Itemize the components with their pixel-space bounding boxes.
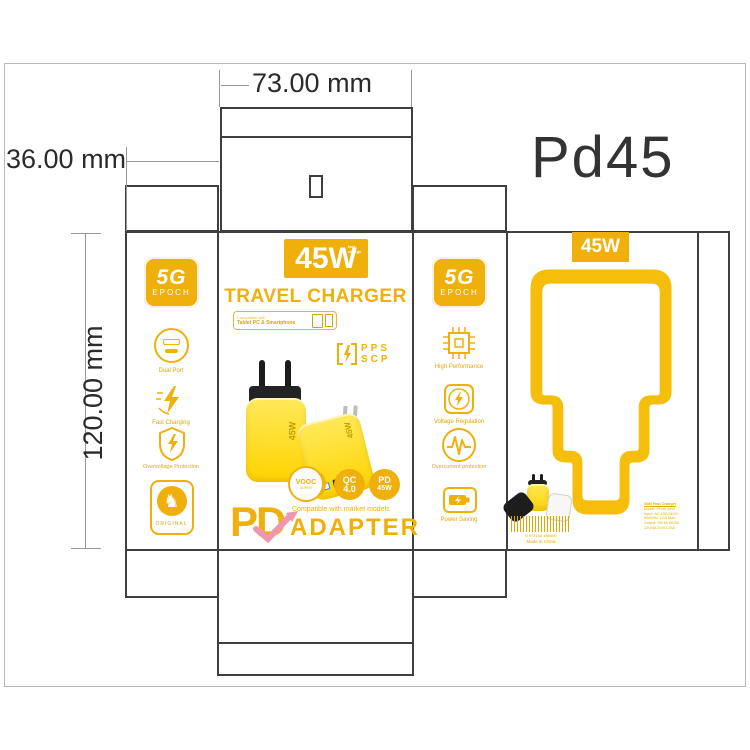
bottom-tuck-lip [217,642,414,676]
compat-line2: Tablet PC & Smartphone [237,320,310,326]
vooc-circle: VOOC SUPER [288,466,324,502]
dimension-width-tick-left [219,70,220,107]
us-charger-watt-label: 45W [342,421,355,439]
right-feature-1-label: High Performance [417,364,501,371]
front-watt-badge: 45W fast charge [284,239,368,278]
pps-text: PPS [361,343,391,354]
packaging-dieline-artwork: 73.00 mm 36.00 mm 120.00 mm Pd45 5G EPOC… [0,0,750,750]
right-epoch-text: EPOCH [440,288,478,298]
dimension-width-line [221,85,249,86]
dimension-depth-label: 36.00 mm [6,144,126,175]
origin-text: Made in China [511,539,571,544]
dimension-width-tick-right [411,70,412,107]
front-watt-sub: fast charge [348,245,364,254]
dual-port-slot-1 [163,339,180,345]
pps-scp-block: PPS SCP [336,342,391,366]
pd45-circle: PD 45W [369,469,400,500]
top-right-dust-flap [412,185,507,232]
overcurrent-icon [441,427,477,463]
artboard-border-top [4,63,746,64]
spec-text-block: GaN Fast Charger Model: PD45 45W Input: … [644,502,700,531]
dimension-height-label: 120.00 mm [78,323,108,463]
left-feature-1-label: Dual Port [131,368,211,375]
artboard-border-left [4,63,5,686]
scp-text: SCP [361,354,391,365]
spec-line: 12V/3A 20V/2.25A [644,526,700,531]
left-epoch-text: EPOCH [152,288,190,298]
voltage-regulation-icon [443,383,475,415]
vooc-swoosh [294,468,326,500]
qc40-circle: QC 4.0 [334,469,365,500]
left-feature-3-label: Overvoltage Protection [141,464,201,471]
phone-icon [325,314,333,327]
original-badge: ♞ ORIGINAL [150,480,194,535]
product-code: Pd45 [531,124,674,191]
chip-icon [441,325,477,361]
brand-adapter-text: ADAPTER [290,515,420,541]
bottom-left-dust-flap [125,549,219,598]
overvoltage-shield-icon [157,426,187,462]
artboard-border-right [745,63,746,686]
barcode [511,516,571,532]
dimension-depth-tick [126,147,127,231]
brand-tagline: Compatible with market models [292,506,390,513]
original-horse-icon: ♞ [157,486,187,516]
dimension-depth-line [126,161,219,162]
barcode-digits: 6 972150 450450 [511,533,571,538]
bottom-right-dust-flap [412,549,507,598]
fast-charging-icon [155,384,187,416]
dimension-width-label: 73.00 mm [252,68,372,99]
right-feature-3-label: Overcurrent protection [429,464,489,471]
compatibility-box: Compatible with Tablet PC & Smartphone [233,311,337,330]
glue-flap [697,231,730,551]
artboard-border-bottom [4,686,746,687]
qc-version-text: 4.0 [343,485,356,494]
right-feature-2-label: Voltage Regulation [417,419,501,426]
dimension-height-tick-top [71,233,101,234]
bottom-tuck-flap [217,549,414,644]
left-5g-epoch-badge: 5G EPOCH [144,257,199,308]
pd-text: PD [378,476,391,485]
dimension-height-tick-bottom [71,548,101,549]
tuck-slot [309,175,323,198]
dual-port-icon [154,328,189,363]
pd-watt-text: 45W [377,485,391,493]
front-title: TRAVEL CHARGER [217,286,414,308]
left-feature-4-label: ORIGINAL [152,521,191,527]
top-tuck-lip [220,107,413,138]
right-5g-epoch-badge: 5G EPOCH [432,257,487,308]
top-left-dust-flap [125,185,219,232]
left-5g-text: 5G [156,267,186,288]
pps-lightning-icon [336,342,358,366]
power-saving-icon [442,486,478,514]
right-5g-text: 5G [444,267,474,288]
right-feature-4-label: Power Saving [417,517,501,524]
dual-port-slot-2 [165,349,178,353]
tablet-icon [312,314,323,328]
